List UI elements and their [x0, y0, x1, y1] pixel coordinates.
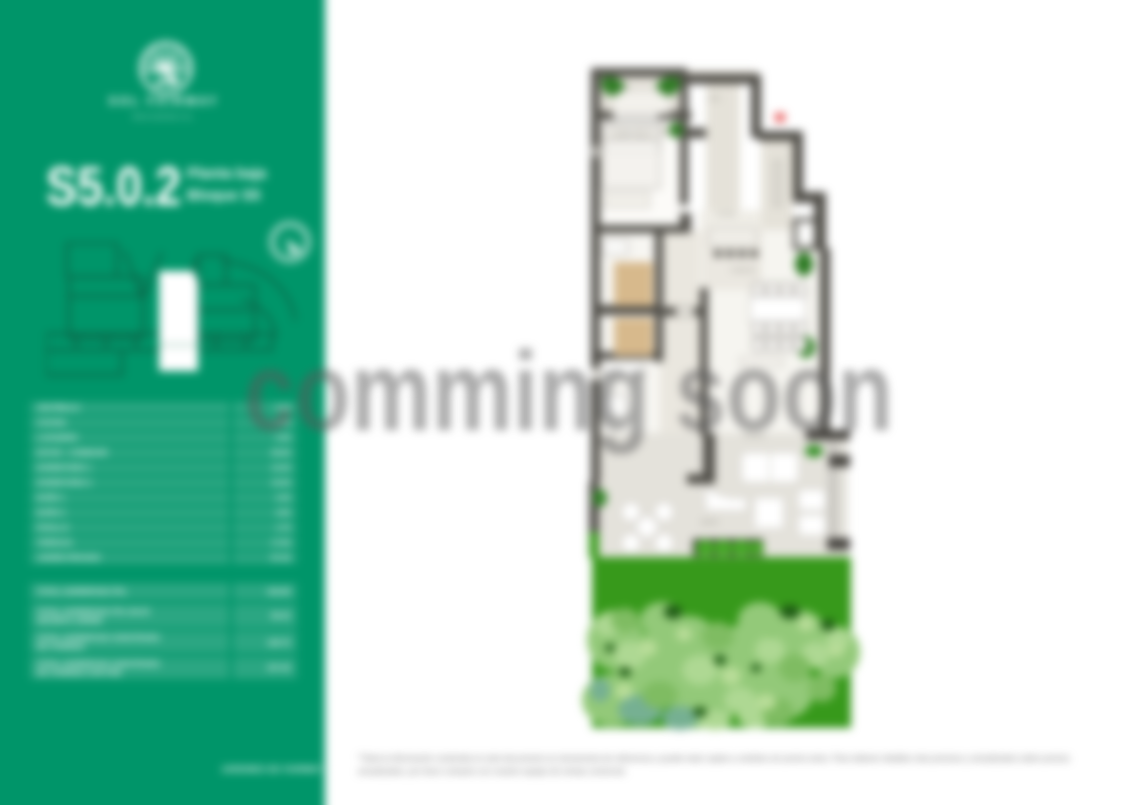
svg-text:DORMITORIO 1: DORMITORIO 1 [613, 132, 653, 138]
svg-text:COCINA: COCINA [716, 212, 736, 218]
svg-text:HALL: HALL [709, 96, 722, 102]
svg-text:JARDIN: JARDIN [700, 520, 718, 526]
svg-text:COMEDOR: COMEDOR [730, 268, 757, 274]
